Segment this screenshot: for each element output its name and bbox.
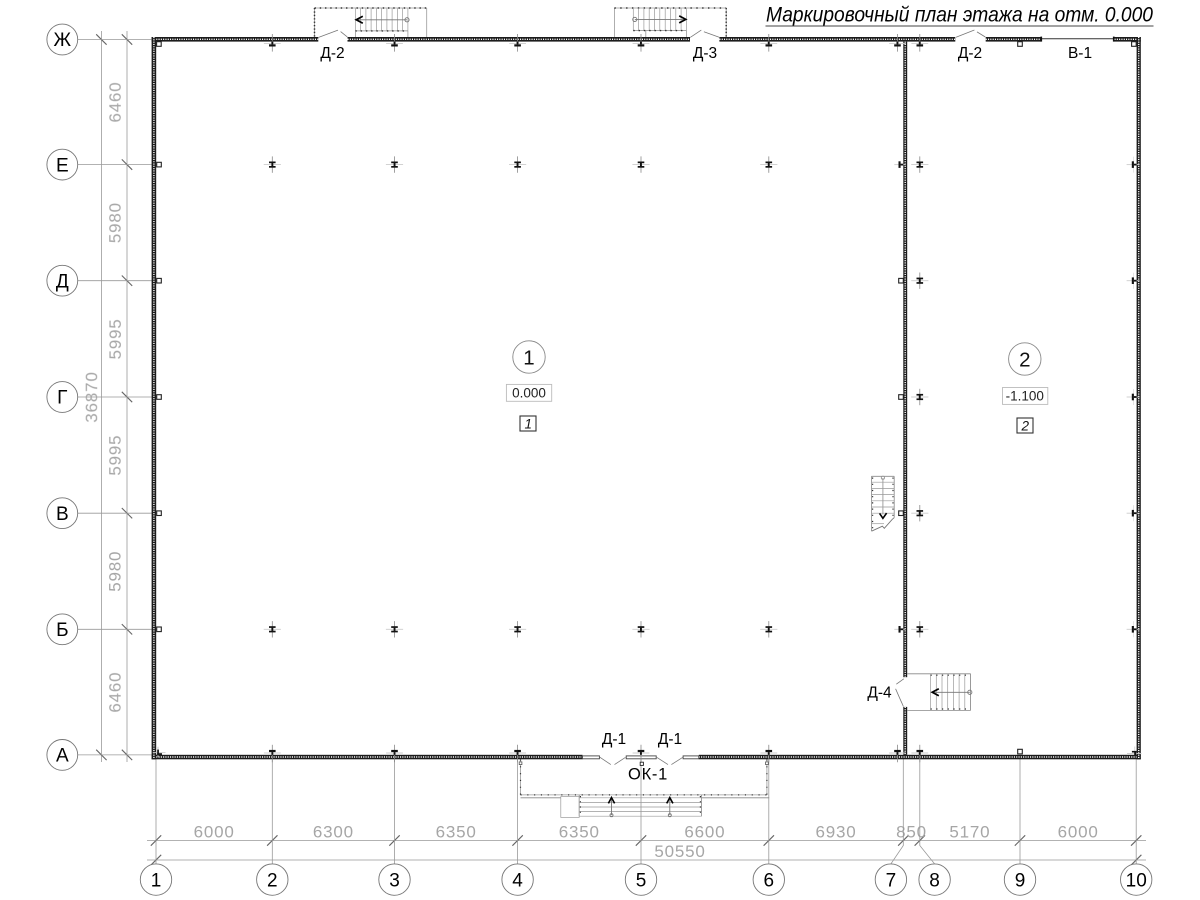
svg-text:Д-2: Д-2	[958, 45, 982, 62]
svg-text:Д-4: Д-4	[867, 685, 892, 702]
svg-text:Д-3: Д-3	[693, 45, 717, 62]
svg-text:Маркировочный план этажа на от: Маркировочный план этажа на отм. 0.000	[766, 2, 1153, 26]
svg-text:Ж: Ж	[54, 30, 72, 51]
svg-text:5980: 5980	[106, 202, 125, 243]
svg-text:В: В	[56, 504, 69, 525]
svg-text:Д: Д	[56, 271, 69, 292]
svg-text:6000: 6000	[194, 822, 235, 841]
svg-text:Е: Е	[56, 155, 69, 176]
svg-text:6300: 6300	[313, 822, 354, 841]
svg-text:Д-2: Д-2	[320, 45, 344, 62]
svg-text:8: 8	[929, 870, 940, 891]
svg-text:7: 7	[886, 870, 897, 891]
svg-text:2: 2	[1021, 418, 1030, 433]
svg-text:9: 9	[1015, 870, 1026, 891]
svg-text:6350: 6350	[436, 822, 477, 841]
svg-text:Д-1: Д-1	[658, 731, 682, 748]
svg-text:850: 850	[896, 822, 927, 841]
svg-text:50550: 50550	[654, 842, 705, 861]
svg-text:5995: 5995	[106, 435, 125, 476]
svg-text:ОК-1: ОК-1	[628, 766, 668, 784]
svg-text:5: 5	[636, 870, 647, 891]
svg-text:6460: 6460	[106, 81, 125, 122]
svg-text:6: 6	[764, 870, 775, 891]
svg-text:5995: 5995	[106, 318, 125, 359]
svg-text:1: 1	[151, 870, 162, 891]
svg-text:А: А	[56, 746, 69, 767]
svg-text:1: 1	[523, 346, 534, 369]
svg-text:Д-1: Д-1	[602, 731, 626, 748]
svg-text:2: 2	[1019, 348, 1030, 371]
svg-text:6000: 6000	[1058, 822, 1099, 841]
svg-text:Б: Б	[56, 620, 68, 641]
svg-text:4: 4	[512, 870, 523, 891]
svg-text:5980: 5980	[106, 551, 125, 592]
svg-text:2: 2	[267, 870, 278, 891]
svg-text:0.000: 0.000	[512, 386, 546, 401]
svg-text:6930: 6930	[815, 822, 856, 841]
svg-text:3: 3	[389, 870, 400, 891]
svg-text:-1.100: -1.100	[1006, 389, 1044, 404]
svg-text:6460: 6460	[106, 672, 125, 713]
svg-text:6600: 6600	[684, 822, 725, 841]
svg-text:5170: 5170	[949, 822, 990, 841]
svg-text:Г: Г	[57, 388, 67, 409]
svg-text:10: 10	[1126, 870, 1147, 891]
svg-text:6350: 6350	[559, 822, 600, 841]
svg-text:В-1: В-1	[1068, 45, 1092, 62]
svg-text:1: 1	[525, 416, 533, 431]
